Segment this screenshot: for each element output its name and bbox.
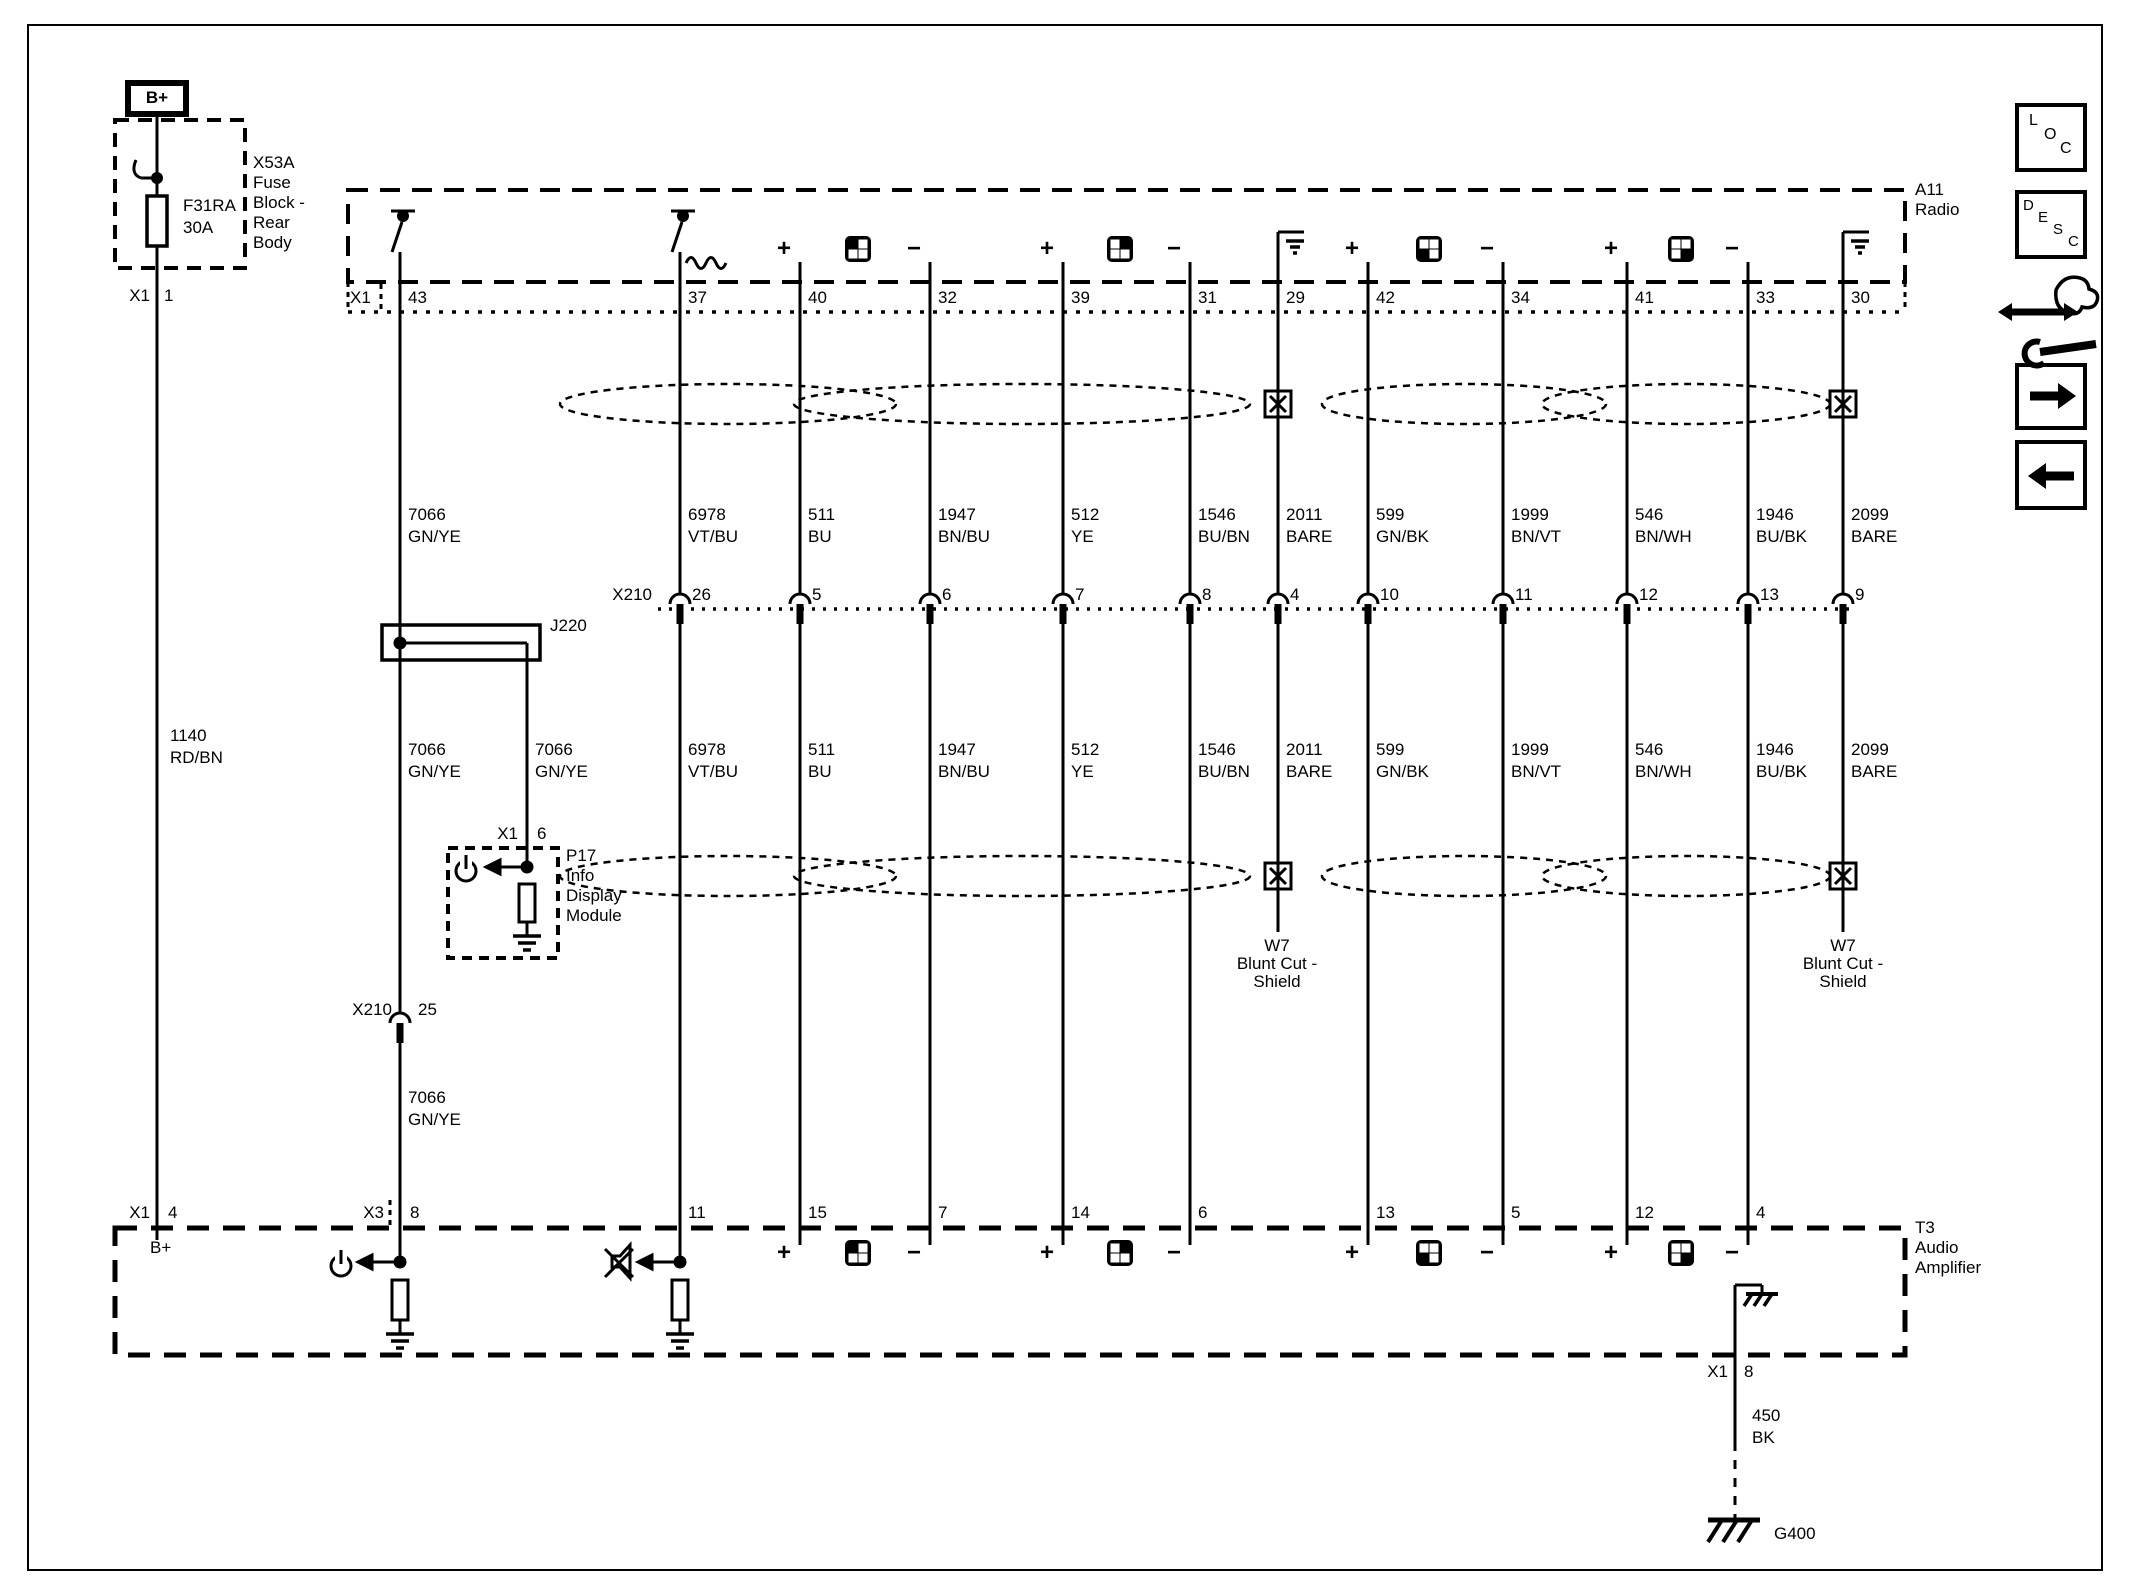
fuse-rating: 30A (183, 218, 213, 238)
wire-circuit: 546 (1635, 505, 1663, 525)
chassis-ground-branch (1735, 1285, 1778, 1355)
amplifier-box (115, 1200, 1905, 1355)
x210-pin: 6 (942, 585, 951, 605)
wire-color: VT/BU (688, 527, 738, 547)
w7-label: Blunt Cut - (1237, 954, 1317, 974)
desc-letter: S (2053, 220, 2063, 240)
x210-pin: 4 (1290, 585, 1299, 605)
w7-label: Shield (1253, 972, 1300, 992)
wire-circuit: 546 (1635, 740, 1663, 760)
wire-circuit: 6978 (688, 740, 726, 760)
ground-icon (1843, 232, 1869, 253)
wire-color: BU (808, 527, 832, 547)
plus-sign: + (1030, 236, 1064, 262)
plus-sign: + (1335, 236, 1369, 262)
speaker-right-front-icon (1107, 236, 1133, 262)
minus-sign: − (1157, 1240, 1191, 1266)
wire-circuit: 7066 (408, 1088, 446, 1108)
wire-circuit: 1946 (1756, 505, 1794, 525)
fuse-block-name: Body (253, 233, 292, 253)
amp-pin: 4 (168, 1203, 177, 1223)
radio-name: Radio (1915, 200, 1959, 220)
wire-color: GN/YE (408, 1110, 461, 1130)
x210-pin: 5 (812, 585, 821, 605)
wire-color: BN/WH (1635, 762, 1692, 782)
minus-sign: − (897, 1240, 931, 1266)
amp-pin: 11 (688, 1203, 706, 1223)
p17-name: Info (566, 866, 594, 886)
harness-repair-button[interactable] (1998, 272, 2108, 372)
x210-pin: 11 (1515, 585, 1533, 605)
amp-name: Amplifier (1915, 1258, 1981, 1278)
plus-sign: + (1335, 1240, 1369, 1266)
radio-pin: 32 (938, 288, 957, 308)
plus-sign: + (1030, 1240, 1064, 1266)
wire-color: BU/BN (1198, 762, 1250, 782)
resistor-icon (672, 1280, 688, 1320)
amp-pin: 8 (1744, 1362, 1753, 1382)
amp-pin: 7 (938, 1203, 947, 1223)
g400-ground-run (1708, 1355, 1760, 1542)
shield-twist-lower (560, 856, 1830, 896)
wiring-diagram-page: B+ F31RA 30A X53A Fuse Block - Rear Body… (0, 0, 2130, 1595)
wire-color: BU/BK (1756, 527, 1807, 547)
x210-pin: 13 (1760, 585, 1779, 605)
wire-color: GN/YE (408, 527, 461, 547)
plus-sign: + (767, 236, 801, 262)
ground-icon (513, 936, 541, 950)
amp-pin: 5 (1511, 1203, 1520, 1223)
wire-circuit: 450 (1752, 1406, 1780, 1426)
power-icon (331, 1250, 351, 1276)
desc-letter: C (2068, 232, 2079, 252)
radio-pin: 40 (808, 288, 827, 308)
wire-circuit: 7066 (408, 505, 446, 525)
x210-connector-label: X210 (590, 585, 652, 605)
x210-pin: 10 (1380, 585, 1399, 605)
ground-icon (666, 1334, 694, 1348)
amp-pin: 15 (808, 1203, 827, 1223)
wire-circuit: 6978 (688, 505, 726, 525)
wire-color: BN/WH (1635, 527, 1692, 547)
minus-sign: − (1470, 236, 1504, 262)
wire-color: RD/BN (170, 748, 223, 768)
arrow-left-icon (358, 1255, 372, 1269)
loc-button[interactable]: L O C (2017, 105, 2085, 170)
w7-label: W7 (1264, 936, 1290, 956)
wire-circuit: 2011 (1286, 740, 1323, 760)
wire-circuit: 2011 (1286, 505, 1323, 525)
minus-sign: − (1715, 1240, 1749, 1266)
radio-id: A11 (1915, 180, 1944, 200)
wiring-linework (0, 0, 2130, 1595)
desc-button[interactable]: D E S C (2017, 192, 2085, 257)
ground-icon (386, 1334, 414, 1348)
wire-color: BN/VT (1511, 527, 1561, 547)
radio-pin: 37 (688, 288, 707, 308)
arrow-left-icon (486, 860, 500, 874)
wire-color: GN/YE (408, 762, 461, 782)
amp-connector-label: X3 (346, 1203, 384, 1223)
wire-circuit: 1999 (1511, 505, 1549, 525)
wire-color: BARE (1286, 527, 1332, 547)
w7-label: Blunt Cut - (1803, 954, 1883, 974)
radio-pin: 31 (1198, 288, 1217, 308)
wire-circuit: 512 (1071, 740, 1099, 760)
radio-connector-label: X1 (350, 288, 371, 308)
fuse-connector-label: X1 (116, 286, 150, 306)
fuse-block-name: Rear (253, 213, 290, 233)
w7-label: Shield (1819, 972, 1866, 992)
amp-pin: 13 (1376, 1203, 1395, 1223)
amp-bplus-label: B+ (150, 1238, 171, 1258)
amp-pin: 6 (1198, 1203, 1207, 1223)
resistor-icon (392, 1280, 408, 1320)
wire-circuit: 511 (808, 505, 835, 525)
speaker-left-rear-icon (1416, 236, 1442, 262)
wire-circuit: 2099 (1851, 740, 1889, 760)
x210-pin: 25 (418, 1000, 437, 1020)
fuse-block-symbol (115, 83, 245, 1240)
speaker-left-rear-icon (1416, 1240, 1442, 1266)
wire-circuit: 2099 (1851, 505, 1889, 525)
p17-connector-label: X1 (486, 824, 518, 844)
amp-name: Audio (1915, 1238, 1958, 1258)
wire-color: BU/BK (1756, 762, 1807, 782)
plus-sign: + (1594, 236, 1628, 262)
p17-name: P17 (566, 846, 596, 866)
fuse-icon (147, 196, 167, 246)
p17-module (448, 848, 558, 958)
plus-sign: + (1594, 1240, 1628, 1266)
page-frame (28, 25, 2102, 1570)
wire-circuit: 511 (808, 740, 835, 760)
bplus-terminal-label: B+ (146, 88, 168, 108)
radio-pin: 41 (1635, 288, 1654, 308)
w7-label: W7 (1830, 936, 1856, 956)
loc-letter: L (2029, 111, 2038, 131)
x210-connector-label: X210 (322, 1000, 392, 1020)
x210-connector-row (658, 594, 1856, 624)
speaker-left-front-icon (845, 1240, 871, 1266)
wire-circuit: 1546 (1198, 505, 1236, 525)
wire-circuit: 599 (1376, 740, 1404, 760)
p17-name: Display (566, 886, 622, 906)
wire-circuit: 1947 (938, 740, 976, 760)
wire-circuit: 1947 (938, 505, 976, 525)
loc-letter: C (2060, 139, 2072, 159)
chassis-ground-icon (1708, 1520, 1760, 1542)
x210-pin: 7 (1075, 585, 1084, 605)
wire-color: BU (808, 762, 832, 782)
wire-color: GN/BK (1376, 527, 1429, 547)
speaker-right-rear-icon (1668, 1240, 1694, 1266)
x210-pin: 8 (1202, 585, 1211, 605)
wire-color: BN/BU (938, 527, 990, 547)
wire-circuit: 1140 (170, 726, 207, 746)
wire-color: GN/YE (535, 762, 588, 782)
loc-letter: O (2044, 125, 2056, 145)
j220-label: J220 (550, 616, 587, 636)
x210-pin25-connector (390, 1013, 410, 1262)
wire-color: BARE (1286, 762, 1332, 782)
wire-color: YE (1071, 527, 1094, 547)
shield-twist-upper (560, 384, 1830, 424)
speaker-right-front-icon (1107, 1240, 1133, 1266)
switch-contact-icon (134, 160, 141, 178)
desc-letter: E (2038, 208, 2048, 228)
wire-color: BARE (1851, 762, 1897, 782)
wire-circuit: 1999 (1511, 740, 1549, 760)
amp-pin: 4 (1756, 1203, 1765, 1223)
chassis-ground-icon (1744, 1294, 1778, 1306)
amp-pin: 12 (1635, 1203, 1654, 1223)
previous-page-button[interactable] (2017, 442, 2085, 508)
amp-id: T3 (1915, 1218, 1935, 1238)
speaker-left-front-icon (845, 236, 871, 262)
wire-color: GN/BK (1376, 762, 1429, 782)
radio-pin: 30 (1851, 288, 1870, 308)
fuse-block-name: Fuse (253, 173, 291, 193)
wire-color: VT/BU (688, 762, 738, 782)
fuse-block-name: Block - (253, 193, 305, 213)
minus-sign: − (1715, 236, 1749, 262)
wire-circuit: 1946 (1756, 740, 1794, 760)
radio-pin: 33 (1756, 288, 1775, 308)
wire-color: BK (1752, 1428, 1775, 1448)
wire-circuit: 512 (1071, 505, 1099, 525)
x210-pin: 12 (1639, 585, 1658, 605)
amp-pin: 8 (410, 1203, 419, 1223)
fuse-id: F31RA (183, 196, 236, 216)
speaker-right-rear-icon (1668, 236, 1694, 262)
fuse-block-box (115, 120, 245, 268)
p17-pin-label: 6 (537, 824, 546, 844)
muted-speaker-icon (605, 1245, 633, 1278)
radio-pin: 39 (1071, 288, 1090, 308)
arrow-left-icon (638, 1255, 652, 1269)
wires-x210-to-amp (680, 624, 1843, 1262)
x210-pin: 26 (692, 585, 711, 605)
wire-circuit: 7066 (535, 740, 573, 760)
next-page-button[interactable] (2017, 365, 2085, 428)
wire-color: YE (1071, 762, 1094, 782)
g400-label: G400 (1774, 1524, 1816, 1544)
wire-color: BN/BU (938, 762, 990, 782)
radio-pin: 29 (1286, 288, 1305, 308)
switch-icon (391, 211, 415, 252)
wire-circuit: 599 (1376, 505, 1404, 525)
ground-icon (1278, 232, 1304, 253)
wire-color: BU/BN (1198, 527, 1250, 547)
fuse-pin-label: 1 (164, 286, 173, 306)
wire-color: BN/VT (1511, 762, 1561, 782)
desc-letter: D (2023, 196, 2034, 216)
minus-sign: − (1157, 236, 1191, 262)
amp-connector-label: X1 (1692, 1362, 1728, 1382)
plus-sign: + (767, 1240, 801, 1266)
wire-circuit: 7066 (408, 740, 446, 760)
radio-pin: 43 (408, 288, 427, 308)
minus-sign: − (1470, 1240, 1504, 1266)
amp-connector-label: X1 (114, 1203, 150, 1223)
wire-color: BARE (1851, 527, 1897, 547)
minus-sign: − (897, 236, 931, 262)
resistor-icon (519, 884, 535, 922)
radio-pin: 42 (1376, 288, 1395, 308)
radio-pin: 34 (1511, 288, 1530, 308)
wire-circuit: 1546 (1198, 740, 1236, 760)
p17-name: Module (566, 906, 622, 926)
fuse-block-name: X53A (253, 153, 295, 173)
power-icon (456, 855, 476, 881)
amp-pin: 14 (1071, 1203, 1090, 1223)
x210-pin: 9 (1855, 585, 1864, 605)
